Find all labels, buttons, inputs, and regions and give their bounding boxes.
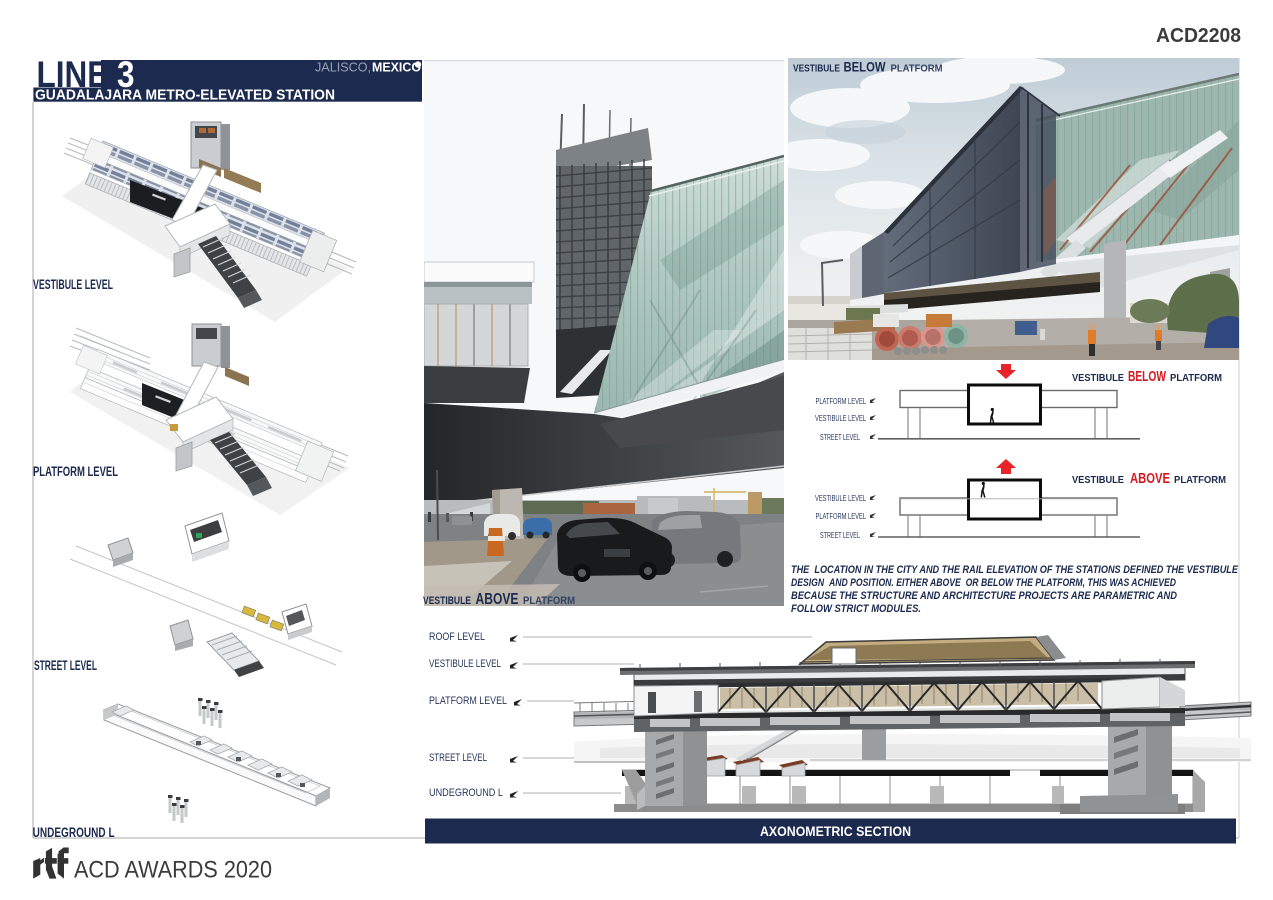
svg-text:GUADALAJARA METRO-ELEVATED STA: GUADALAJARA METRO-ELEVATED STATION: [35, 87, 335, 104]
svg-text:STREET LEVEL: STREET LEVEL: [820, 432, 860, 442]
svg-text:UNDEGROUND L: UNDEGROUND L: [429, 787, 503, 799]
svg-text:VESTIBULE LEVEL: VESTIBULE LEVEL: [815, 493, 866, 503]
svg-text:DESIGN AND POSITION. EITHER A: DESIGN AND POSITION. EITHER ABOVE OR BEL…: [791, 577, 1176, 589]
svg-text:STREET LEVEL: STREET LEVEL: [820, 530, 860, 540]
svg-text:PLATFORM: PLATFORM: [891, 64, 943, 75]
svg-text:VESTIBULE: VESTIBULE: [423, 595, 471, 607]
svg-text:ACD AWARDS 2020: ACD AWARDS 2020: [74, 857, 272, 884]
svg-text:ABOVE: ABOVE: [1130, 471, 1170, 487]
svg-text:PLATFORM: PLATFORM: [1170, 372, 1222, 384]
svg-text:ABOVE: ABOVE: [476, 591, 519, 608]
svg-text:PLATFORM: PLATFORM: [523, 595, 575, 607]
svg-text:VESTIBULE: VESTIBULE: [1072, 474, 1124, 486]
svg-text:UNDEGROUND L: UNDEGROUND L: [33, 825, 115, 840]
svg-text:MEXICO: MEXICO: [372, 60, 421, 75]
svg-text:ROOF LEVEL: ROOF LEVEL: [429, 631, 485, 643]
svg-text:STREET LEVEL: STREET LEVEL: [429, 752, 487, 764]
svg-text:VESTIBULE LEVEL: VESTIBULE LEVEL: [815, 413, 866, 423]
svg-text:THE LOCATION IN THE CITY AND: THE LOCATION IN THE CITY AND THE RAIL EL…: [791, 564, 1239, 576]
svg-text:ACD2208: ACD2208: [1156, 25, 1241, 47]
svg-text:PLATFORM: PLATFORM: [1174, 474, 1226, 486]
svg-text:FOLLOW STRICT MODULES.: FOLLOW STRICT MODULES.: [791, 603, 921, 615]
svg-text:VESTIBULE LEVEL: VESTIBULE LEVEL: [429, 658, 501, 670]
svg-text:VESTIBULE: VESTIBULE: [1072, 372, 1124, 384]
svg-text:PLATFORM LEVEL: PLATFORM LEVEL: [816, 511, 867, 521]
svg-text:PLATFORM LEVEL: PLATFORM LEVEL: [33, 464, 118, 479]
svg-text:VESTIBULE: VESTIBULE: [793, 64, 840, 75]
svg-text:BELOW: BELOW: [1128, 369, 1166, 385]
svg-text:JALISCO,: JALISCO,: [315, 60, 371, 75]
svg-text:AXONOMETRIC SECTION: AXONOMETRIC SECTION: [760, 823, 911, 839]
svg-text:BECAUSE THE STRUCTURE AND ARCH: BECAUSE THE STRUCTURE AND ARCHITECTURE P…: [791, 590, 1177, 602]
svg-text:PLATFORM LEVEL: PLATFORM LEVEL: [816, 396, 867, 406]
svg-text:STREET LEVEL: STREET LEVEL: [34, 658, 97, 673]
svg-text:BELOW: BELOW: [844, 60, 886, 75]
svg-text:PLATFORM LEVEL: PLATFORM LEVEL: [429, 695, 507, 707]
svg-text:VESTIBULE LEVEL: VESTIBULE LEVEL: [33, 277, 113, 292]
